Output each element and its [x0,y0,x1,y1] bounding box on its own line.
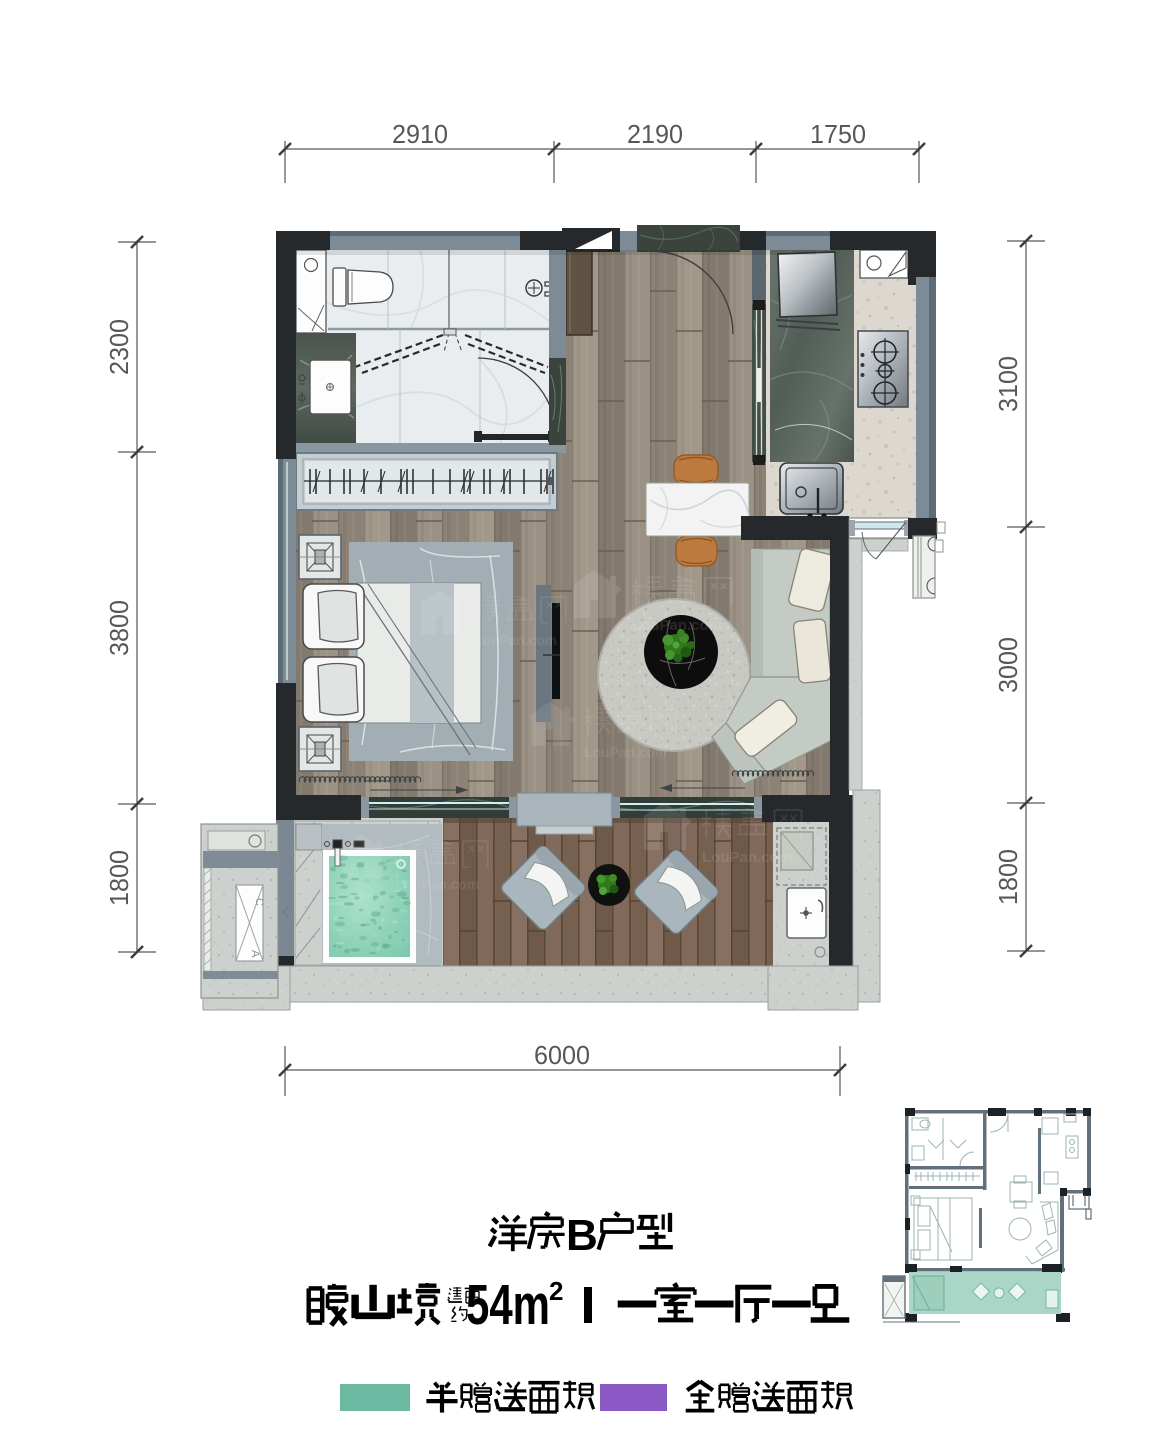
svg-text:2300: 2300 [104,319,134,375]
svg-text:C: C [253,898,265,906]
svg-text:A: A [249,950,261,958]
svg-text:LouPan.com: LouPan.com [396,877,479,892]
svg-text:1750: 1750 [810,119,866,149]
svg-text:B: B [566,1211,598,1260]
svg-text:2190: 2190 [627,119,683,149]
svg-text:3100: 3100 [993,356,1023,412]
svg-text:LouPan.com: LouPan.com [584,745,667,760]
svg-text:2: 2 [549,1276,563,1306]
svg-text:1800: 1800 [993,849,1023,905]
svg-text:2910: 2910 [392,119,448,149]
svg-text:LouPan.com: LouPan.com [474,633,557,648]
svg-text:1800: 1800 [104,850,134,906]
svg-text:3000: 3000 [993,637,1023,693]
svg-text:3800: 3800 [104,600,134,656]
svg-text:LouPan.com: LouPan.com [702,849,792,866]
svg-text:LouPan.com: LouPan.com [632,617,722,634]
svg-text:6000: 6000 [534,1040,590,1070]
svg-text:54m: 54m [466,1273,550,1337]
